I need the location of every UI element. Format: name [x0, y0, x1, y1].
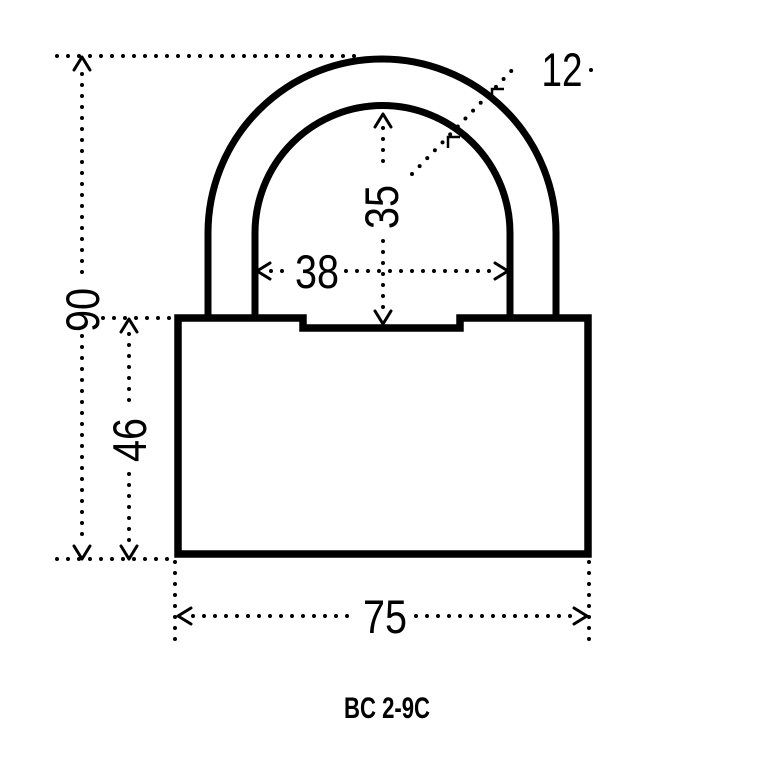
arrow-left-icon	[257, 263, 270, 279]
thickness-tick-inner	[448, 137, 460, 148]
arrow-right-icon	[495, 263, 508, 279]
dim-label-shackle-thickness: 12	[542, 43, 583, 96]
technical-drawing-canvas: 90 46 75 38	[0, 0, 768, 768]
arrow-up-icon	[74, 57, 90, 70]
dim-label-shackle-inner-width: 38	[295, 245, 339, 298]
dim-label-body-width: 75	[363, 590, 407, 643]
arrow-up-icon	[375, 114, 391, 127]
dimension-shackle-inner-height: 35	[355, 114, 408, 324]
dimension-body-height: 46	[103, 318, 171, 559]
arrow-down-icon	[74, 546, 90, 559]
dim-label-shackle-inner-height: 35	[355, 185, 408, 229]
dim-label-total-height: 90	[56, 288, 109, 332]
arrow-up-icon	[121, 319, 137, 332]
dimension-body-width: 75	[175, 562, 589, 643]
drawing-page: 90 46 75 38	[0, 0, 768, 768]
dim-label-body-height: 46	[103, 418, 156, 462]
arrow-down-icon	[375, 311, 391, 324]
arrow-right-icon	[574, 608, 587, 624]
padlock-body-outline	[178, 318, 588, 554]
arrow-left-icon	[178, 608, 191, 624]
model-label: BC 2-9C	[344, 692, 430, 725]
